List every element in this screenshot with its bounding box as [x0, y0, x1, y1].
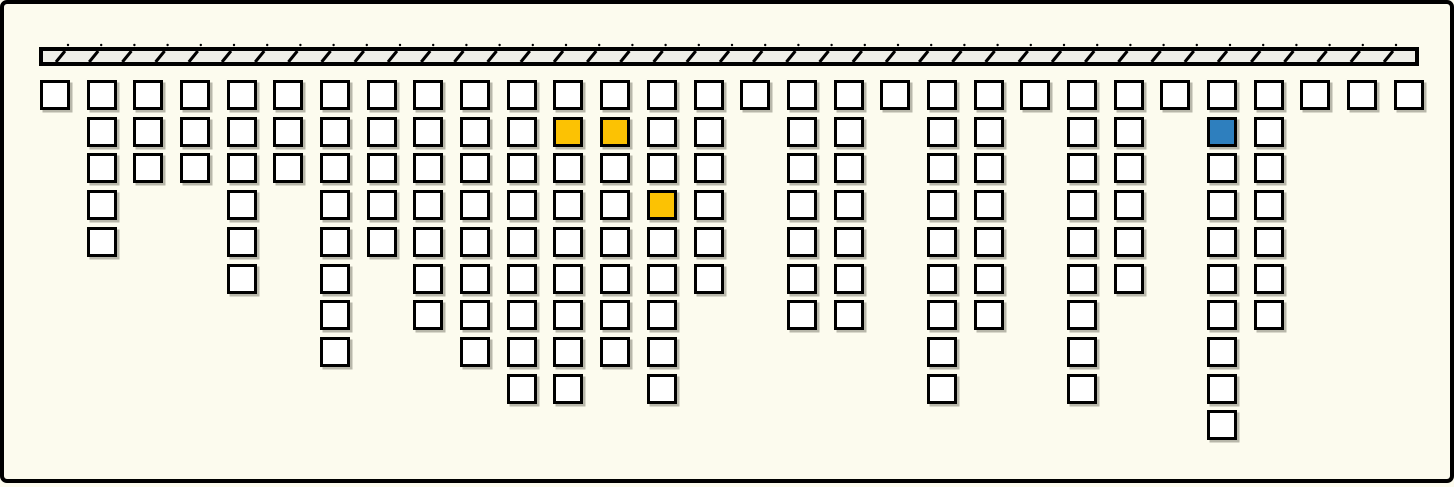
grid-square: [600, 337, 630, 367]
grid-square: [1254, 190, 1284, 220]
grid-square: [1254, 80, 1284, 110]
grid-square: [320, 337, 350, 367]
grid-square: [600, 264, 630, 294]
grid-square: [320, 190, 350, 220]
grid-square: [413, 190, 443, 220]
grid-square: [1067, 117, 1097, 147]
grid-square: [880, 80, 910, 110]
grid-square: [320, 264, 350, 294]
highlighted-grid-square: [553, 117, 583, 147]
grid-square: [1067, 190, 1097, 220]
grid-square: [87, 190, 117, 220]
squares-grid: [4, 4, 1454, 487]
grid-square: [927, 80, 957, 110]
grid-square: [227, 227, 257, 257]
grid-square: [460, 153, 490, 183]
grid-square: [320, 153, 350, 183]
grid-square: [927, 227, 957, 257]
grid-square: [600, 80, 630, 110]
highlighted-grid-square: [1207, 117, 1237, 147]
grid-square: [1114, 117, 1144, 147]
grid-square: [553, 190, 583, 220]
grid-square: [460, 80, 490, 110]
grid-square: [1300, 80, 1330, 110]
grid-square: [1254, 264, 1284, 294]
grid-square: [600, 300, 630, 330]
grid-square: [740, 80, 770, 110]
grid-square: [834, 153, 864, 183]
grid-square: [1254, 227, 1284, 257]
grid-square: [787, 117, 817, 147]
grid-square: [974, 300, 1004, 330]
grid-square: [413, 117, 443, 147]
grid-square: [1207, 153, 1237, 183]
grid-square: [927, 264, 957, 294]
grid-square: [974, 80, 1004, 110]
grid-square: [133, 153, 163, 183]
grid-square: [1067, 227, 1097, 257]
grid-square: [927, 153, 957, 183]
grid-square: [974, 153, 1004, 183]
grid-square: [1207, 80, 1237, 110]
grid-square: [460, 190, 490, 220]
grid-square: [1114, 190, 1144, 220]
grid-square: [87, 153, 117, 183]
grid-square: [273, 80, 303, 110]
grid-square: [1114, 153, 1144, 183]
grid-square: [180, 153, 210, 183]
grid-square: [367, 153, 397, 183]
grid-square: [553, 227, 583, 257]
grid-square: [787, 227, 817, 257]
grid-square: [507, 227, 537, 257]
grid-square: [460, 227, 490, 257]
grid-square: [1207, 410, 1237, 440]
grid-square: [413, 227, 443, 257]
grid-square: [1160, 80, 1190, 110]
grid-square: [1067, 337, 1097, 367]
grid-square: [974, 227, 1004, 257]
grid-square: [647, 264, 677, 294]
grid-square: [180, 80, 210, 110]
grid-square: [834, 300, 864, 330]
grid-square: [694, 80, 724, 110]
grid-square: [1254, 117, 1284, 147]
grid-square: [787, 80, 817, 110]
grid-square: [367, 117, 397, 147]
grid-square: [1207, 227, 1237, 257]
grid-square: [834, 227, 864, 257]
grid-square: [787, 300, 817, 330]
grid-square: [927, 190, 957, 220]
diagram-frame: [0, 0, 1454, 483]
grid-square: [787, 190, 817, 220]
grid-square: [507, 264, 537, 294]
highlighted-grid-square: [600, 117, 630, 147]
grid-square: [507, 190, 537, 220]
grid-square: [974, 117, 1004, 147]
grid-square: [927, 337, 957, 367]
grid-square: [694, 153, 724, 183]
grid-square: [600, 153, 630, 183]
grid-square: [227, 117, 257, 147]
grid-square: [320, 300, 350, 330]
grid-square: [460, 117, 490, 147]
grid-square: [367, 227, 397, 257]
grid-square: [367, 80, 397, 110]
grid-square: [927, 300, 957, 330]
grid-square: [1207, 374, 1237, 404]
grid-square: [273, 117, 303, 147]
grid-square: [507, 117, 537, 147]
grid-square: [413, 80, 443, 110]
grid-square: [320, 227, 350, 257]
grid-square: [507, 300, 537, 330]
grid-square: [553, 80, 583, 110]
grid-square: [553, 153, 583, 183]
grid-square: [834, 264, 864, 294]
grid-square: [787, 153, 817, 183]
grid-square: [1067, 300, 1097, 330]
grid-square: [647, 117, 677, 147]
grid-square: [460, 264, 490, 294]
grid-square: [320, 80, 350, 110]
grid-square: [647, 337, 677, 367]
grid-square: [974, 264, 1004, 294]
grid-square: [647, 153, 677, 183]
grid-square: [40, 80, 70, 110]
grid-square: [133, 80, 163, 110]
grid-square: [1394, 80, 1424, 110]
grid-square: [694, 190, 724, 220]
grid-square: [1207, 300, 1237, 330]
grid-square: [647, 227, 677, 257]
grid-square: [927, 374, 957, 404]
grid-square: [787, 264, 817, 294]
grid-square: [1207, 264, 1237, 294]
grid-square: [507, 153, 537, 183]
grid-square: [600, 227, 630, 257]
grid-square: [553, 300, 583, 330]
grid-square: [927, 117, 957, 147]
grid-square: [834, 117, 864, 147]
grid-square: [87, 227, 117, 257]
grid-square: [1114, 227, 1144, 257]
grid-square: [1114, 264, 1144, 294]
grid-square: [647, 80, 677, 110]
grid-square: [694, 227, 724, 257]
grid-square: [87, 117, 117, 147]
grid-square: [413, 264, 443, 294]
grid-square: [1067, 374, 1097, 404]
grid-square: [413, 153, 443, 183]
highlighted-grid-square: [647, 190, 677, 220]
grid-square: [834, 80, 864, 110]
grid-square: [1114, 80, 1144, 110]
grid-square: [507, 80, 537, 110]
grid-square: [180, 117, 210, 147]
grid-square: [1347, 80, 1377, 110]
grid-square: [1020, 80, 1050, 110]
grid-square: [413, 300, 443, 330]
grid-square: [694, 264, 724, 294]
grid-square: [87, 80, 117, 110]
grid-square: [507, 337, 537, 367]
grid-square: [1207, 190, 1237, 220]
grid-square: [273, 153, 303, 183]
grid-square: [694, 117, 724, 147]
grid-square: [507, 374, 537, 404]
grid-square: [600, 190, 630, 220]
grid-square: [647, 374, 677, 404]
grid-square: [460, 337, 490, 367]
grid-square: [227, 264, 257, 294]
grid-square: [133, 117, 163, 147]
grid-square: [1254, 300, 1284, 330]
grid-square: [1067, 264, 1097, 294]
grid-square: [320, 117, 350, 147]
grid-square: [647, 300, 677, 330]
grid-square: [1067, 80, 1097, 110]
grid-square: [1067, 153, 1097, 183]
grid-square: [1254, 153, 1284, 183]
grid-square: [834, 190, 864, 220]
grid-square: [227, 153, 257, 183]
grid-square: [460, 300, 490, 330]
grid-square: [227, 80, 257, 110]
grid-square: [367, 190, 397, 220]
grid-square: [553, 374, 583, 404]
grid-square: [974, 190, 1004, 220]
grid-square: [1207, 337, 1237, 367]
grid-square: [227, 190, 257, 220]
grid-square: [553, 337, 583, 367]
grid-square: [553, 264, 583, 294]
